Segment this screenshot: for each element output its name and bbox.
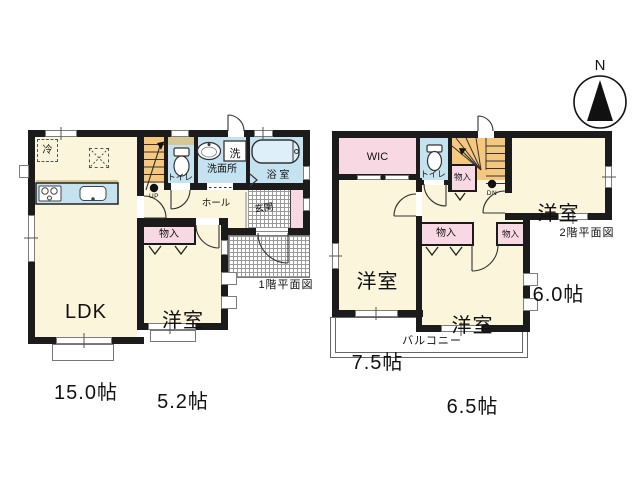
f2-caption: 2階平面図 bbox=[556, 227, 618, 240]
f2-toilet-icon bbox=[427, 145, 442, 171]
f2-bedroom65-area: 6.5帖 bbox=[422, 394, 523, 421]
bath-label: 浴 室 bbox=[255, 170, 301, 182]
ldk-label: LDK 15.0帖 bbox=[35, 245, 137, 461]
washroom-sink-icon bbox=[198, 143, 221, 160]
hall-label: ホール bbox=[196, 199, 236, 209]
f2-bedroom75-area: 7.5帖 bbox=[339, 350, 416, 377]
washer-label: 洗 bbox=[224, 145, 246, 161]
f1-bedroom-area: 5.2帖 bbox=[144, 389, 222, 416]
f1-stairs-icon bbox=[144, 142, 165, 191]
f1-toilet-label: トイレ bbox=[164, 172, 196, 182]
fridge-label: 冷 bbox=[37, 145, 58, 157]
f1-stairs-up-label: UP bbox=[144, 193, 164, 201]
f2-bedroom60-area: 6.0帖 bbox=[512, 282, 605, 309]
f2-bedroom75-label: 洋室 7.5帖 bbox=[339, 215, 416, 431]
floorplan-canvas: 冷 洗 トイレ 洗面所 浴 室 ホール 玄関 物入 UP LDK 15.0帖 洋… bbox=[0, 0, 636, 480]
f2-toilet-label: トイレ bbox=[416, 169, 450, 179]
compass-north-label: N bbox=[590, 57, 610, 74]
f2-closet-a-label: 物入 bbox=[418, 228, 474, 240]
f2-closet-b-label: 物入 bbox=[496, 229, 525, 239]
f1-closet-label: 物入 bbox=[142, 229, 196, 241]
kitchen-counter bbox=[36, 180, 118, 204]
f2-bedroom75-name: 洋室 bbox=[339, 269, 416, 296]
f1-bedroom-label: 洋室 5.2帖 bbox=[144, 254, 222, 470]
f2-stairs-dn-label: DN bbox=[482, 190, 502, 198]
f2-closet-stairs-label: 物入 bbox=[448, 172, 477, 182]
compass-icon bbox=[574, 76, 626, 128]
balcony-label: バルコニー bbox=[382, 335, 482, 348]
wic-label: WIC bbox=[339, 151, 416, 163]
f2-bedroom65-label: 洋室 6.5帖 bbox=[422, 259, 523, 475]
ldk-name: LDK bbox=[35, 299, 137, 326]
f1-bedroom-name: 洋室 bbox=[144, 308, 222, 335]
f1-stairs-start-dot bbox=[150, 184, 158, 192]
f2-bedroom60-name: 洋室 bbox=[512, 201, 605, 228]
ldk-area: 15.0帖 bbox=[35, 380, 137, 407]
bathtub-icon bbox=[252, 140, 299, 163]
f1-caption: 1階平面図 bbox=[250, 279, 322, 292]
washroom-label: 洗面所 bbox=[198, 164, 246, 176]
f2-stairs-end-dot bbox=[488, 180, 496, 188]
ceiling-hatch-x bbox=[89, 148, 109, 168]
f1-closet-hangers bbox=[149, 246, 187, 254]
f2-bedroom60-label: 洋室 6.0帖 bbox=[512, 147, 605, 363]
